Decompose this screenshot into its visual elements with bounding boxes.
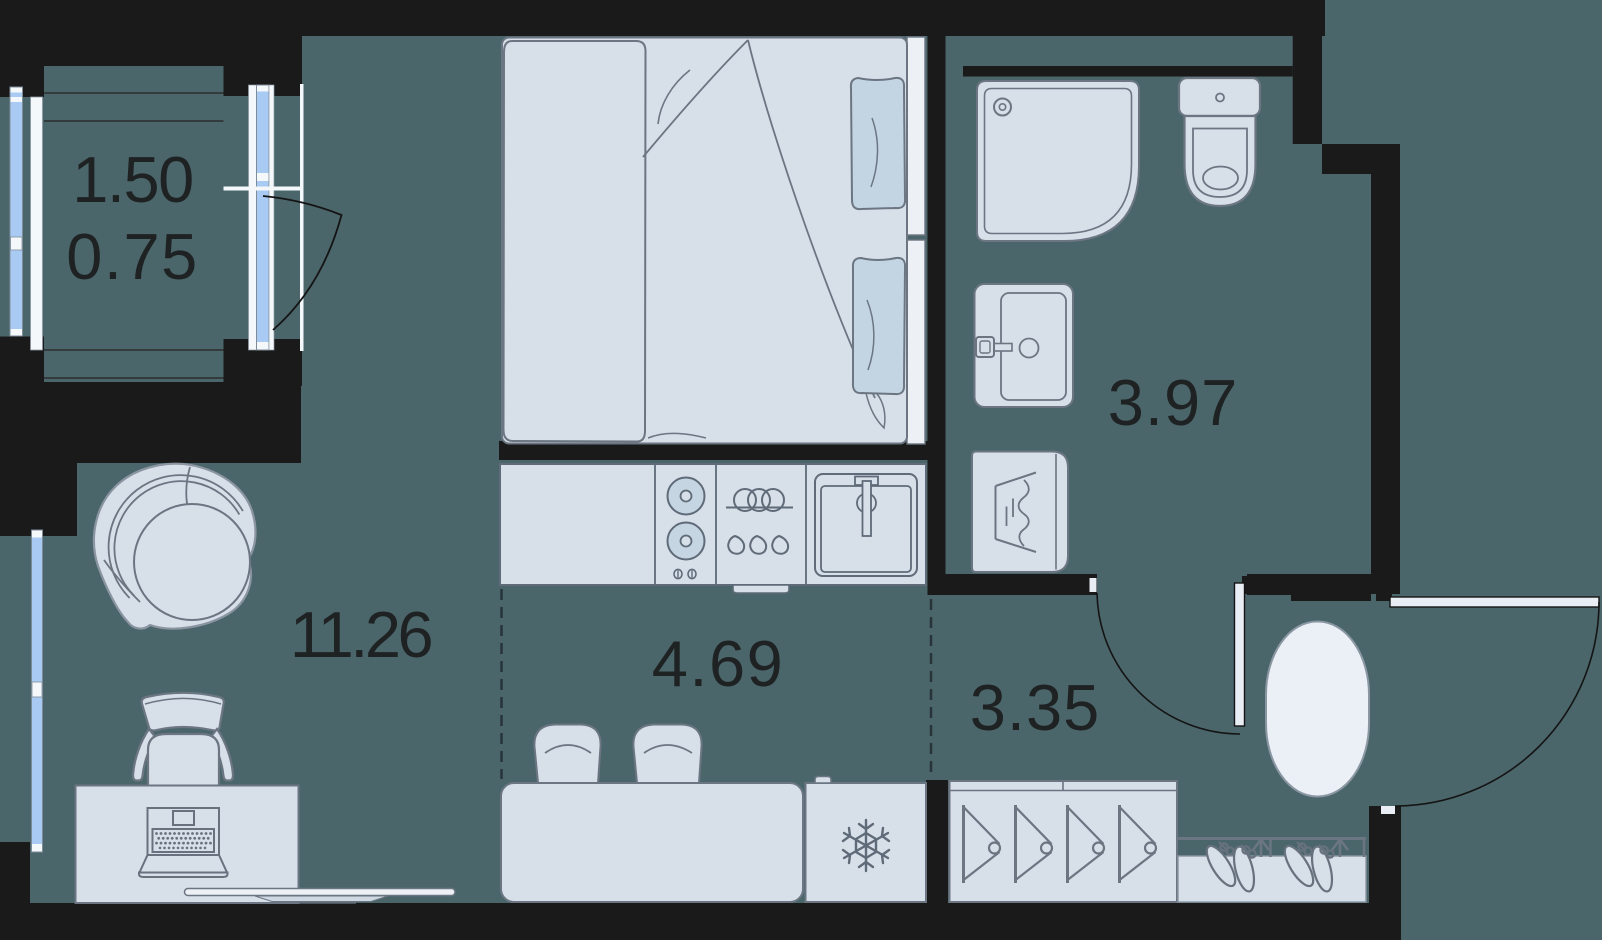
- svg-text:1.50: 1.50: [72, 143, 193, 216]
- svg-text:3.35: 3.35: [970, 671, 1101, 744]
- svg-text:0.75: 0.75: [66, 220, 199, 293]
- svg-text:4.69: 4.69: [652, 627, 785, 700]
- svg-text:3.97: 3.97: [1108, 366, 1239, 439]
- svg-text:11.26: 11.26: [290, 598, 432, 671]
